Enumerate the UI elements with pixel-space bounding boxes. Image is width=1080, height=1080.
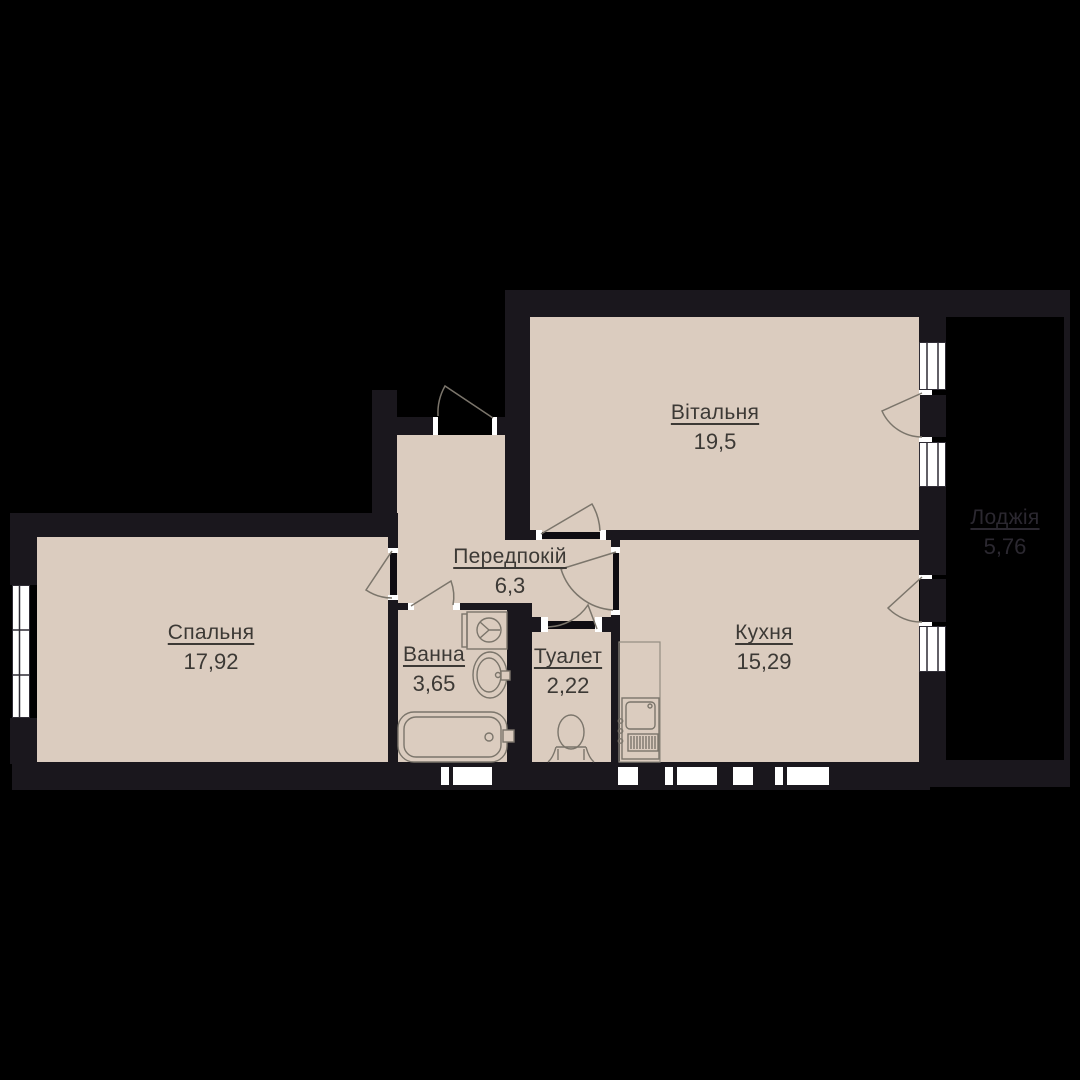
wall-bath-toilet [507,603,532,762]
toilet-area: 2,22 [534,673,602,699]
kitchen-door-leaf [613,553,619,610]
wall-bedroom-right-upper [388,537,398,548]
label-bedroom: Спальня 17,92 [168,621,254,675]
wall-bath-top-b [460,603,507,610]
wall-bedroom-left-lower [10,718,37,764]
bath-door-jamb-right [453,603,460,610]
balcony-living-jamb-top [919,390,932,395]
toilet-name: Туалет [534,645,602,669]
label-hallway: Передпокій 6,3 [453,545,567,599]
hallway-name: Передпокій [453,545,567,569]
bath-door-opening [414,603,453,610]
loggia-area: 5,76 [970,534,1039,560]
bottom-vent-2 [453,767,492,785]
entrance-door-jamb-left [433,417,438,435]
wall-bathroom-left [388,600,398,762]
bathroom-name: Ванна [403,643,465,667]
bedroom-door-leaf [390,553,397,595]
toilet-door-jamb-left [541,617,548,632]
wall-living-left [505,317,530,540]
kitchen-name: Кухня [735,621,793,645]
wall-bedroom-top [10,513,398,537]
wall-toilet-right [611,615,620,762]
bedroom-window [12,585,30,718]
wall-top-outer [505,290,1070,317]
kitchen-door-jamb-bottom [611,610,620,615]
floor-plan-canvas: Вітальня 19,5 Спальня 17,92 Передпокій 6… [0,0,1080,1080]
entrance-door-swing [438,386,493,418]
bedroom-door-jamb-bottom [388,595,398,600]
kitchen-area: 15,29 [735,649,793,675]
bath-door-jamb-left [408,603,414,610]
balcony-door-living [920,395,946,437]
label-kitchen: Кухня 15,29 [735,621,793,675]
living-window-1 [919,342,946,390]
wall-bedroom-left-upper [10,537,37,585]
label-loggia: Лоджія 5,76 [970,506,1039,560]
bedroom-name: Спальня [168,621,254,645]
living-room-area: 19,5 [671,429,759,455]
label-bathroom: Ванна 3,65 [403,643,465,697]
bathroom-area: 3,65 [403,671,465,697]
entrance-door-jamb-right [492,417,497,435]
bottom-vent-8 [787,767,829,785]
loggia-name: Лоджія [970,506,1039,530]
wall-right-c [919,672,946,762]
kitchen-window [919,626,946,672]
wall-toilet-top-b [602,617,611,632]
wall-bath-top-a [398,603,408,610]
living-room-name: Вітальня [671,401,759,425]
bottom-vent-1 [441,767,449,785]
wall-hall-kitchen-upper [611,540,620,547]
wall-loggia-bottom [930,760,1070,787]
wall-living-bottom-b [606,530,922,540]
label-living-room: Вітальня 19,5 [671,401,759,455]
bedroom-area: 17,92 [168,649,254,675]
label-toilet: Туалет 2,22 [534,645,602,699]
bottom-vent-3 [618,767,638,785]
wall-entrance-right [497,417,506,435]
living-door-jamb-right [600,530,606,540]
living-window-2 [919,442,946,487]
living-door-leaf [542,532,600,539]
bottom-vent-4 [665,767,673,785]
bottom-vent-6 [733,767,753,785]
wall-right-a [919,317,946,342]
wall-right-b [919,487,946,575]
balcony-kitchen-jamb-top [919,575,932,579]
wall-entrance-left [397,417,433,435]
balcony-door-kitchen [920,579,946,622]
hallway-area: 6,3 [453,573,567,599]
wall-loggia-right [1064,317,1070,760]
bottom-vent-7 [775,767,783,785]
toilet-door-jamb-right [595,617,602,632]
wall-toilet-top-a [532,617,541,632]
bottom-vent-5 [677,767,717,785]
toilet-door-leaf [548,621,595,629]
